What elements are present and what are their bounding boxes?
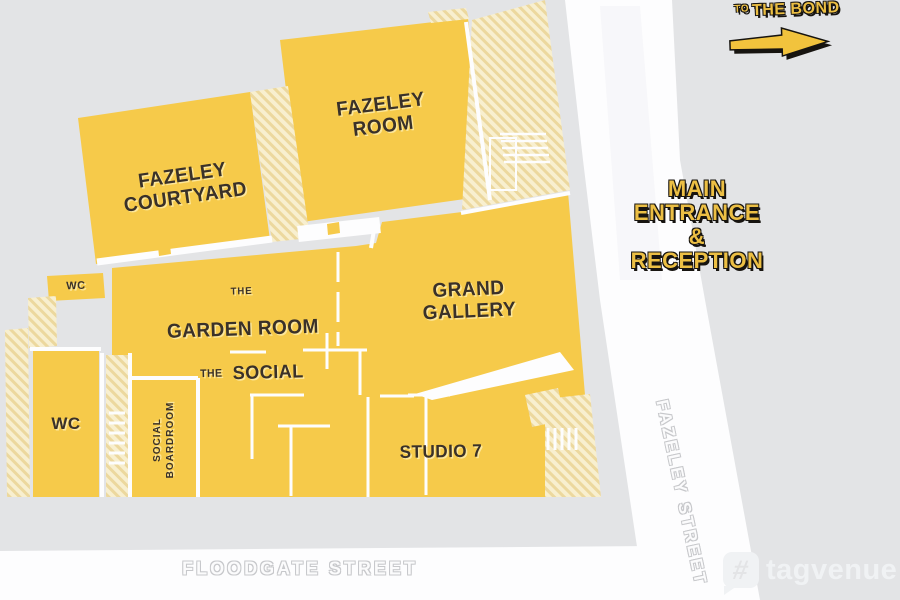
hatch-studio-side: [545, 394, 601, 497]
direction-arrow-icon: [726, 23, 839, 65]
room-label-garden-room: THE GARDEN ROOM: [165, 263, 320, 344]
garden-room-name: GARDEN ROOM: [167, 316, 320, 343]
entrance-line-4: RECEPTION: [598, 249, 796, 273]
the-social-prefix: THE: [200, 368, 223, 381]
hash-bubble-icon: #: [723, 552, 759, 588]
floodgate-street-label: FLOODGATE STREET: [182, 559, 418, 580]
entrance-line-2: ENTRANCE: [598, 201, 796, 225]
entrance-line-3: &: [598, 225, 796, 249]
fazeley-street-shape: [565, 0, 760, 600]
hatch-stair-strip: [106, 355, 128, 497]
floorplan-map: FAZELEY ROOM FAZELEY COURTYARD THE GARDE…: [0, 0, 900, 600]
entrance-line-1: MAIN: [598, 177, 796, 201]
room-label-the-social: THE SOCIAL: [200, 362, 304, 385]
room-label-studio-7: STUDIO 7: [400, 442, 483, 463]
the-social-name: SOCIAL: [232, 361, 304, 384]
room-label-wc-lower: WC: [51, 415, 80, 433]
to-the-bond-prefix: TO: [734, 3, 749, 15]
door-dash-2: [327, 222, 340, 235]
tagvenue-watermark: # tagvenue: [723, 552, 897, 588]
hash-glyph: #: [731, 557, 751, 584]
garden-room-prefix: THE: [166, 284, 318, 300]
hatch-left-a: [28, 296, 57, 348]
to-the-bond-text: THE BOND: [752, 0, 840, 19]
room-label-social-boardroom: SOCIAL BOARDROOM: [151, 402, 177, 479]
room-label-wc-upper: WC: [66, 281, 86, 294]
room-label-grand-gallery: GRAND GALLERY: [421, 277, 516, 324]
watermark-brand: tagvenue: [766, 554, 897, 587]
main-entrance-sign: MAIN ENTRANCE & RECEPTION: [598, 177, 796, 273]
hatch-left-b: [5, 328, 30, 497]
